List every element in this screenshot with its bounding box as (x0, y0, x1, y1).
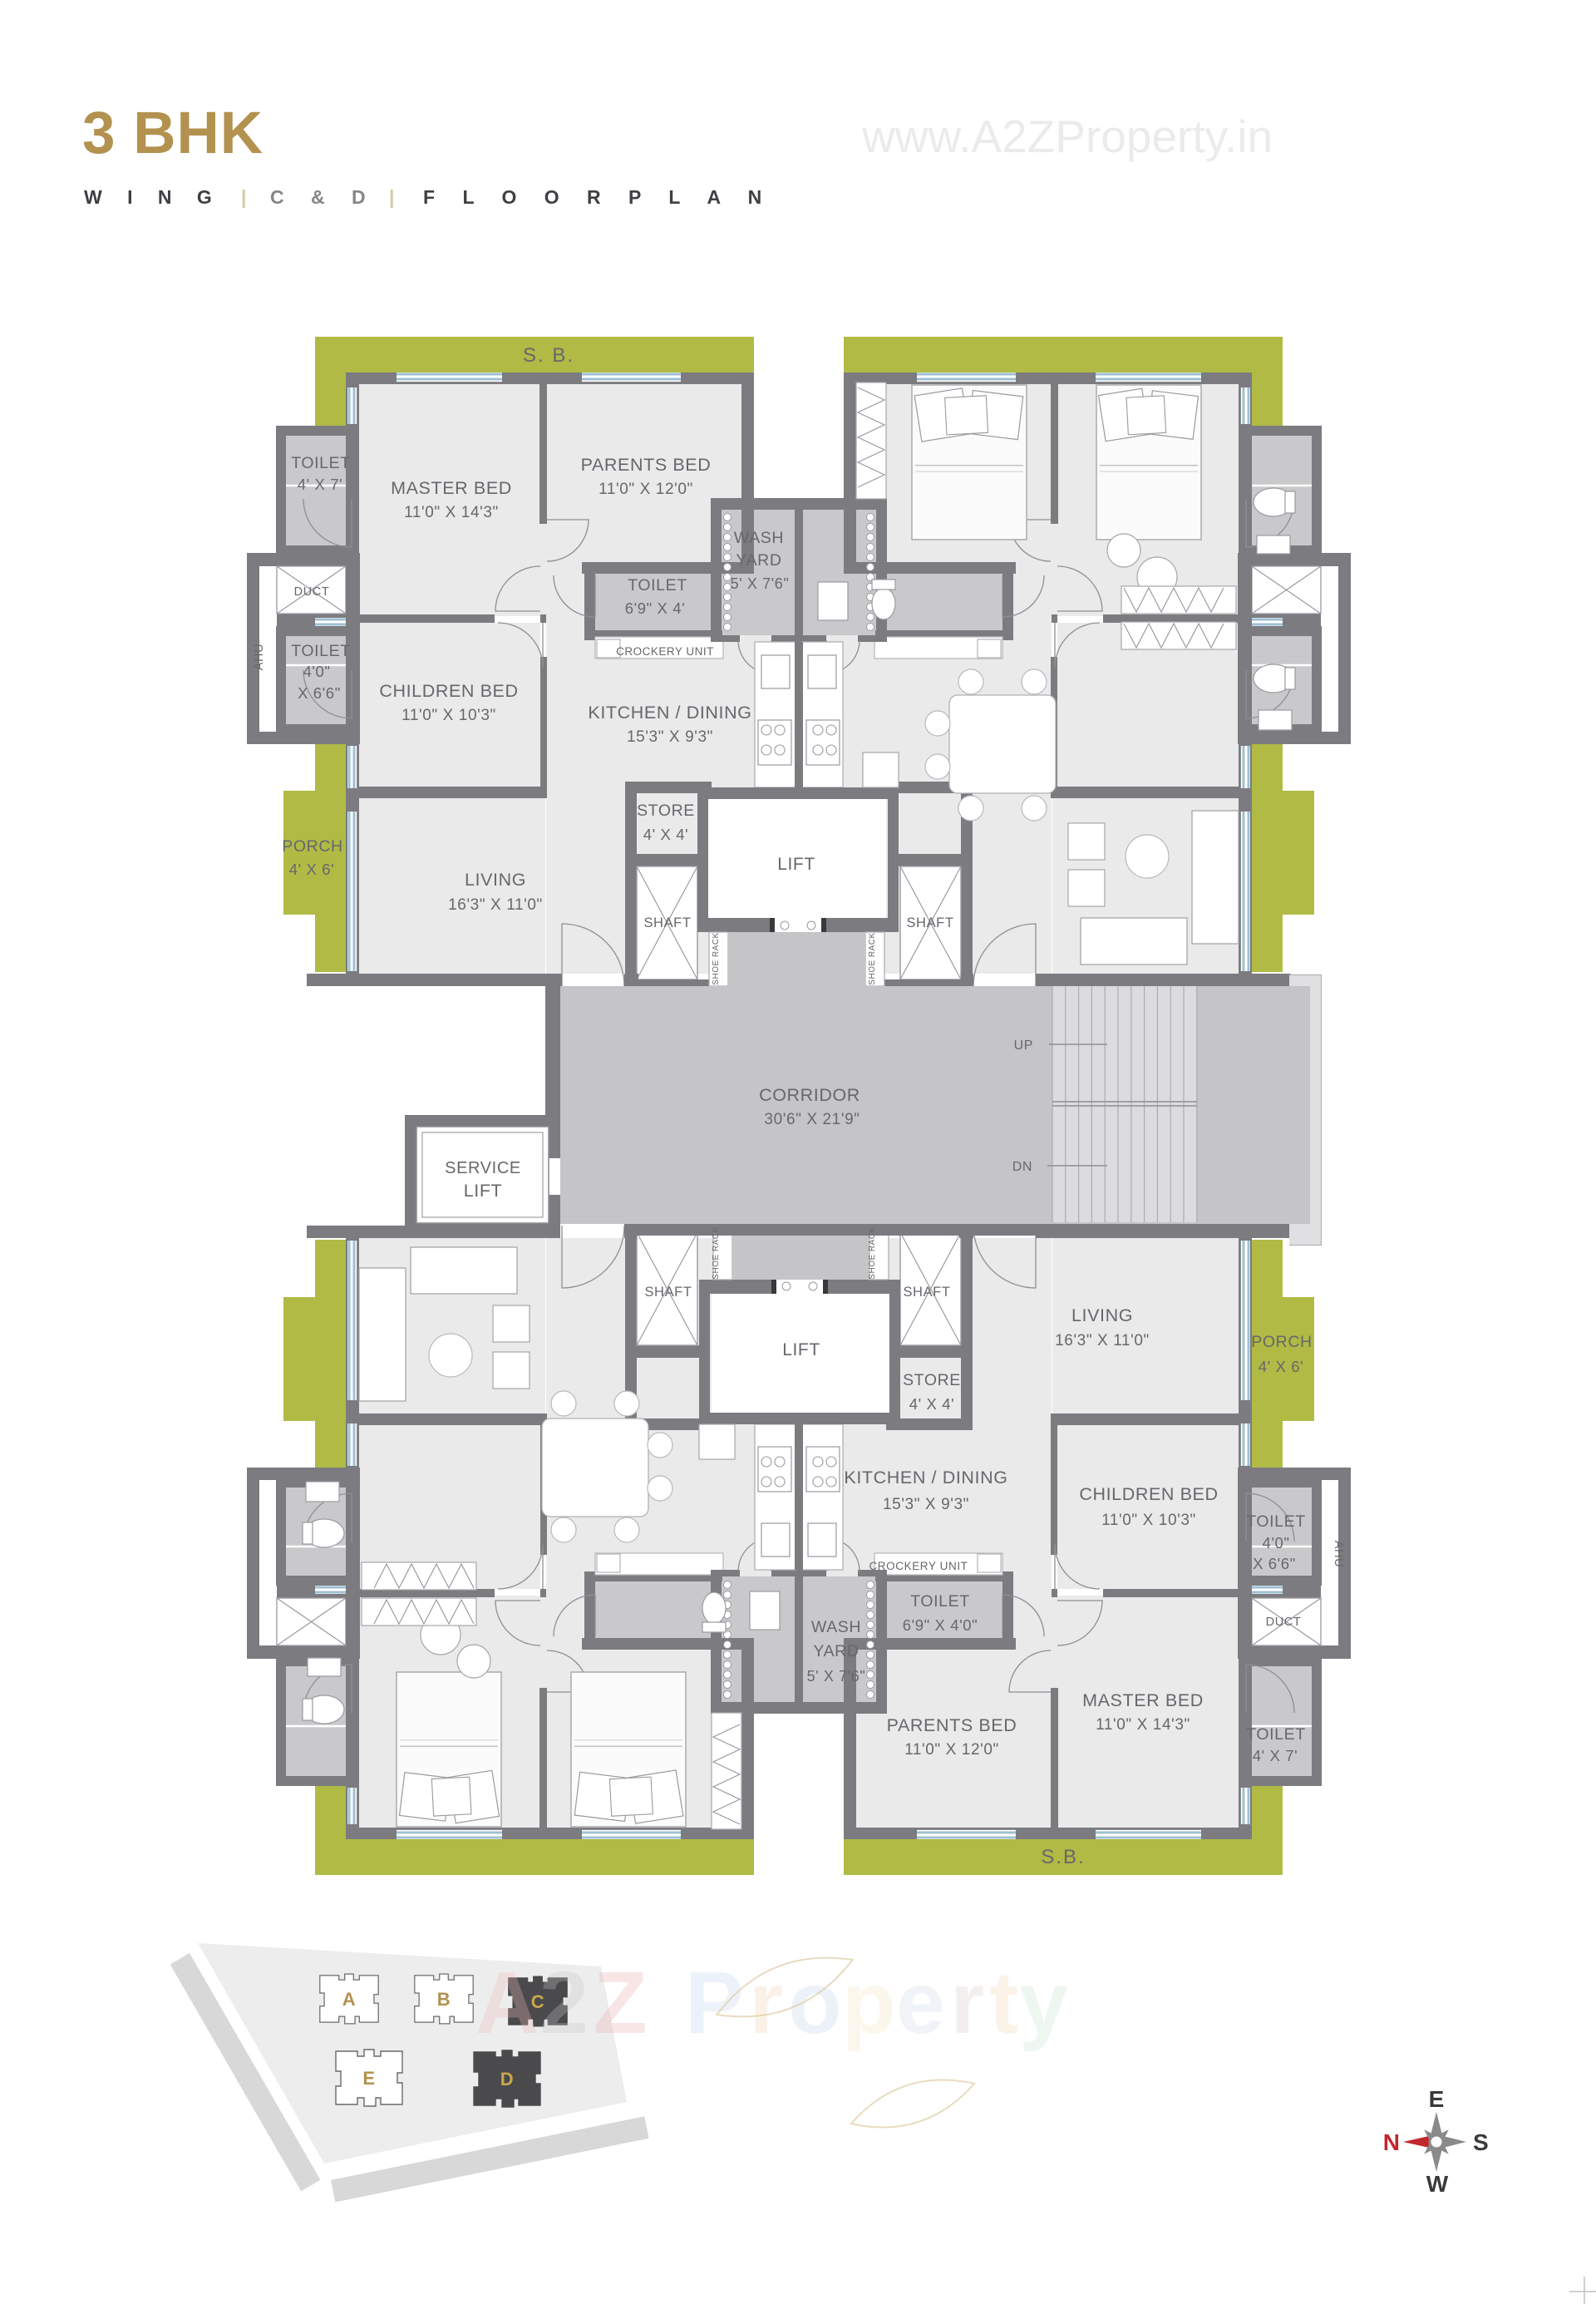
svg-text:N: N (1383, 2129, 1400, 2155)
svg-text:www.A2ZProperty.in: www.A2ZProperty.in (861, 111, 1273, 162)
svg-text:TOILET: TOILET (1246, 1512, 1306, 1531)
svg-text:LIFT: LIFT (777, 855, 815, 874)
svg-text:5' X 7'6": 5' X 7'6" (807, 1668, 866, 1685)
svg-text:r: r (950, 1954, 984, 2052)
svg-text:C & D: C & D (270, 186, 377, 208)
svg-text:STORE: STORE (637, 802, 695, 820)
svg-text:B: B (437, 1989, 451, 2010)
svg-text:o: o (788, 1954, 842, 2052)
svg-text:F L O O R P L A N: F L O O R P L A N (423, 186, 773, 208)
svg-text:CROCKERY UNIT: CROCKERY UNIT (869, 1560, 968, 1572)
svg-text:YARD: YARD (813, 1642, 859, 1660)
svg-text:A: A (475, 1954, 539, 2052)
svg-text:MASTER BED: MASTER BED (391, 478, 512, 498)
svg-text:X 6'6": X 6'6" (298, 684, 341, 702)
svg-text:SHAFT: SHAFT (903, 1285, 950, 1300)
svg-text:4'0": 4'0" (1262, 1534, 1289, 1552)
svg-text:4' X 4': 4' X 4' (909, 1395, 954, 1413)
svg-text:e: e (896, 1954, 945, 2052)
svg-text:E: E (362, 2068, 375, 2089)
svg-text:11'0" X 14'3": 11'0" X 14'3" (1096, 1716, 1190, 1734)
svg-text:p: p (842, 1954, 896, 2052)
svg-text:W I N G: W I N G (84, 186, 222, 208)
svg-text:t: t (989, 1954, 1018, 2052)
svg-text:STORE: STORE (903, 1371, 961, 1389)
svg-text:15'3" X 9'3": 15'3" X 9'3" (883, 1496, 969, 1513)
svg-text:TOILET: TOILET (628, 576, 687, 595)
svg-text:11'0" X 12'0": 11'0" X 12'0" (598, 481, 693, 498)
svg-text:PARENTS BED: PARENTS BED (581, 455, 712, 475)
svg-text:E: E (1429, 2086, 1445, 2112)
svg-text:CROCKERY UNIT: CROCKERY UNIT (616, 645, 714, 658)
svg-text:X 6'6": X 6'6" (1253, 1555, 1296, 1572)
svg-text:TOILET: TOILET (291, 642, 351, 660)
svg-text:4'0": 4'0" (303, 663, 330, 680)
svg-text:SHOE RACK: SHOE RACK (712, 932, 721, 984)
svg-text:CORRIDOR: CORRIDOR (759, 1085, 860, 1105)
svg-text:S. B.: S. B. (523, 344, 574, 367)
svg-text:4' X 4': 4' X 4' (643, 826, 688, 843)
svg-text:KITCHEN / DINING: KITCHEN / DINING (588, 703, 751, 723)
svg-text:4' X 7': 4' X 7' (1253, 1747, 1298, 1764)
svg-text:11'0" X 10'3": 11'0" X 10'3" (1101, 1512, 1196, 1529)
svg-text:TOILET: TOILET (1246, 1725, 1306, 1744)
svg-text:15'3" X 9'3": 15'3" X 9'3" (627, 728, 713, 746)
svg-text:16'3" X 11'0": 16'3" X 11'0" (1055, 1332, 1150, 1349)
svg-text:SHAFT: SHAFT (643, 915, 691, 930)
svg-text:PORCH: PORCH (282, 837, 342, 856)
svg-text:r: r (749, 1954, 783, 2052)
svg-text:YARD: YARD (736, 551, 781, 570)
svg-text:6'9" X 4'0": 6'9" X 4'0" (903, 1616, 978, 1634)
svg-text:LIVING: LIVING (465, 870, 526, 890)
svg-text:D: D (500, 2069, 515, 2089)
svg-text:3 BHK: 3 BHK (82, 101, 264, 166)
svg-text:y: y (1019, 1954, 1068, 2052)
svg-text:4' X 6': 4' X 6' (1259, 1358, 1303, 1375)
svg-text:4' X 7': 4' X 7' (298, 476, 342, 493)
svg-text:WASH: WASH (811, 1618, 861, 1636)
svg-text:Z: Z (594, 1954, 648, 2052)
svg-text:LIFT: LIFT (782, 1340, 820, 1359)
svg-text:TOILET: TOILET (910, 1592, 970, 1611)
svg-text:11'0" X 10'3": 11'0" X 10'3" (401, 707, 496, 724)
svg-text:TOILET: TOILET (291, 454, 351, 472)
svg-text:SHOE RACK: SHOE RACK (868, 932, 877, 984)
svg-text:SHOE RACK: SHOE RACK (868, 1226, 877, 1279)
svg-text:P: P (685, 1954, 744, 2052)
svg-text:PARENTS BED: PARENTS BED (887, 1715, 1017, 1735)
svg-text:WASH: WASH (734, 529, 784, 547)
svg-text:|: | (389, 186, 394, 208)
svg-text:|: | (241, 186, 246, 208)
svg-text:2: 2 (539, 1954, 589, 2052)
svg-text:11'0" X 12'0": 11'0" X 12'0" (904, 1741, 999, 1759)
svg-text:UP: UP (1014, 1039, 1033, 1053)
svg-text:SHOE RACK: SHOE RACK (712, 1226, 721, 1279)
svg-text:SHAFT: SHAFT (906, 915, 953, 930)
svg-text:LIVING: LIVING (1071, 1305, 1133, 1325)
svg-text:S: S (1473, 2129, 1489, 2155)
svg-text:KITCHEN / DINING: KITCHEN / DINING (844, 1468, 1007, 1487)
svg-text:6'9" X 4': 6'9" X 4' (625, 599, 686, 617)
svg-text:MASTER BED: MASTER BED (1082, 1690, 1204, 1710)
svg-text:SERVICE: SERVICE (445, 1159, 521, 1177)
svg-text:DUCT: DUCT (1266, 1616, 1302, 1629)
svg-text:AHU: AHU (253, 644, 266, 670)
svg-text:16'3" X 11'0": 16'3" X 11'0" (448, 896, 543, 914)
svg-text:AHU: AHU (1332, 1541, 1345, 1567)
svg-text:11'0" X 14'3": 11'0" X 14'3" (404, 504, 499, 521)
svg-text:4' X 6': 4' X 6' (289, 861, 334, 878)
svg-text:A: A (342, 1989, 357, 2010)
svg-text:S.B.: S.B. (1041, 1846, 1085, 1868)
svg-text:30'6" X 21'9": 30'6" X 21'9" (764, 1111, 860, 1128)
svg-text:DN: DN (1012, 1160, 1032, 1174)
svg-text:CHILDREN BED: CHILDREN BED (1079, 1484, 1218, 1504)
svg-text:PORCH: PORCH (1251, 1333, 1312, 1351)
svg-text:SHAFT: SHAFT (644, 1285, 692, 1300)
svg-text:W: W (1426, 2171, 1449, 2197)
svg-text:LIFT: LIFT (464, 1181, 503, 1201)
svg-text:CHILDREN BED: CHILDREN BED (379, 681, 518, 701)
svg-text:5' X 7'6": 5' X 7'6" (731, 575, 790, 592)
svg-text:DUCT: DUCT (294, 585, 330, 599)
